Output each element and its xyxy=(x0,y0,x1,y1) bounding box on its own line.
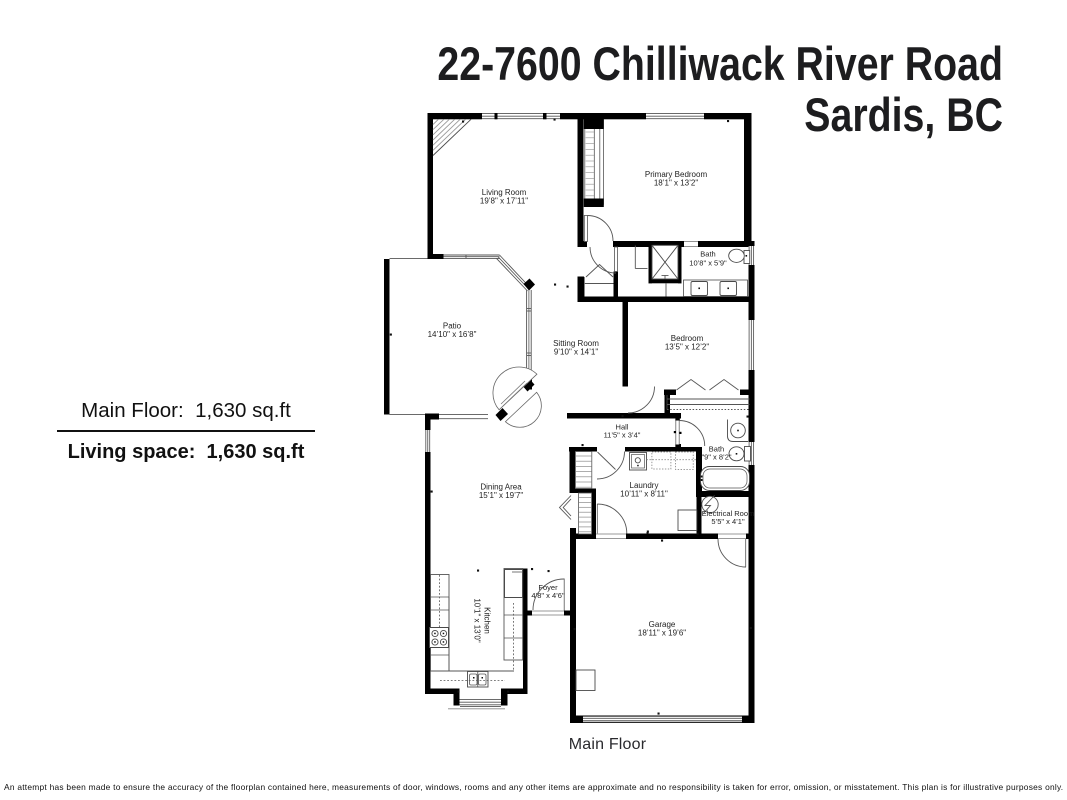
svg-text:4’8" x 4’6": 4’8" x 4’6" xyxy=(531,591,565,600)
svg-text:Kitchen10’1" x 13’0": Kitchen10’1" x 13’0" xyxy=(473,598,492,643)
svg-text:14’10" x 16’8": 14’10" x 16’8" xyxy=(428,330,477,339)
svg-text:5’5" x 4’1": 5’5" x 4’1" xyxy=(711,517,745,526)
svg-text:11’5" x 3’4": 11’5" x 3’4" xyxy=(604,431,641,440)
svg-text:"9" x 8’2": "9" x 8’2" xyxy=(701,453,731,462)
svg-text:Bath: Bath xyxy=(700,250,715,259)
svg-text:19’8" x 17’11": 19’8" x 17’11" xyxy=(480,196,528,205)
svg-text:18’1" x 13’2": 18’1" x 13’2" xyxy=(654,179,699,188)
svg-text:10’8" x 5’9": 10’8" x 5’9" xyxy=(689,259,727,268)
svg-text:10’11" x 8’11": 10’11" x 8’11" xyxy=(620,489,668,498)
svg-text:13’5" x 12’2": 13’5" x 12’2" xyxy=(665,343,710,352)
svg-text:9’10" x 14’1": 9’10" x 14’1" xyxy=(554,348,599,357)
svg-text:18’11" x 19’6": 18’11" x 19’6" xyxy=(638,628,686,637)
svg-text:15’1" x 19’7": 15’1" x 19’7" xyxy=(479,491,524,500)
